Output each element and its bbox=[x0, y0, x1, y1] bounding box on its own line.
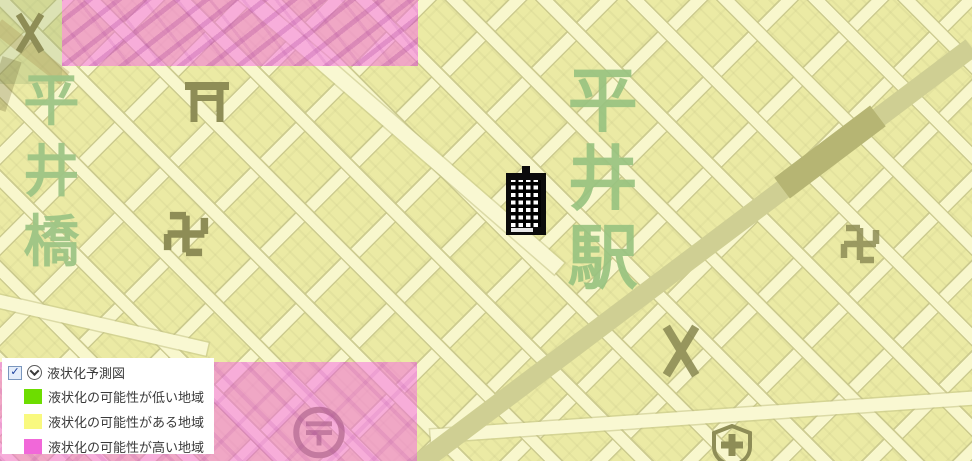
building-windows bbox=[511, 180, 541, 227]
legend-item-label: 液状化の可能性が低い地域 bbox=[48, 387, 204, 406]
building-marker-icon[interactable] bbox=[506, 173, 546, 235]
legend-item-label: 液状化の可能性が高い地域 bbox=[48, 437, 204, 456]
legend-item-medium: 液状化の可能性がある地域 bbox=[2, 409, 214, 434]
map-viewport[interactable]: 平井橋 平井駅 ✓ 液状化予測図 液状化の可能性が低い地域 液状化の可能性がある… bbox=[0, 0, 972, 461]
police-box-icon bbox=[10, 11, 50, 55]
collapse-chevron-icon[interactable] bbox=[27, 365, 42, 380]
legend-header: ✓ 液状化予測図 bbox=[2, 358, 214, 384]
layer-checkbox[interactable]: ✓ bbox=[8, 366, 22, 380]
place-label-hiraibashi: 平井橋 bbox=[22, 66, 81, 278]
legend-item-low: 液状化の可能性が低い地域 bbox=[2, 384, 214, 409]
medium-risk-swatch bbox=[24, 414, 42, 429]
hospital-icon bbox=[710, 424, 754, 461]
place-label-hirai-station: 平井駅 bbox=[566, 62, 640, 297]
high-risk-swatch bbox=[24, 439, 42, 454]
low-risk-swatch bbox=[24, 389, 42, 404]
legend-item-label: 液状化の可能性がある地域 bbox=[48, 412, 204, 431]
high-risk-zone-overlay bbox=[62, 0, 418, 66]
building-antenna bbox=[522, 166, 530, 174]
temple-icon bbox=[840, 221, 880, 267]
shrine-icon bbox=[183, 78, 231, 124]
legend-title: 液状化予測図 bbox=[47, 363, 125, 382]
police-box-icon bbox=[660, 322, 702, 380]
legend-item-high: 液状化の可能性が高い地域 bbox=[2, 434, 214, 459]
building-entrance bbox=[511, 228, 533, 232]
temple-icon bbox=[163, 208, 209, 260]
legend-panel: ✓ 液状化予測図 液状化の可能性が低い地域 液状化の可能性がある地域 液状化の可… bbox=[2, 358, 214, 454]
